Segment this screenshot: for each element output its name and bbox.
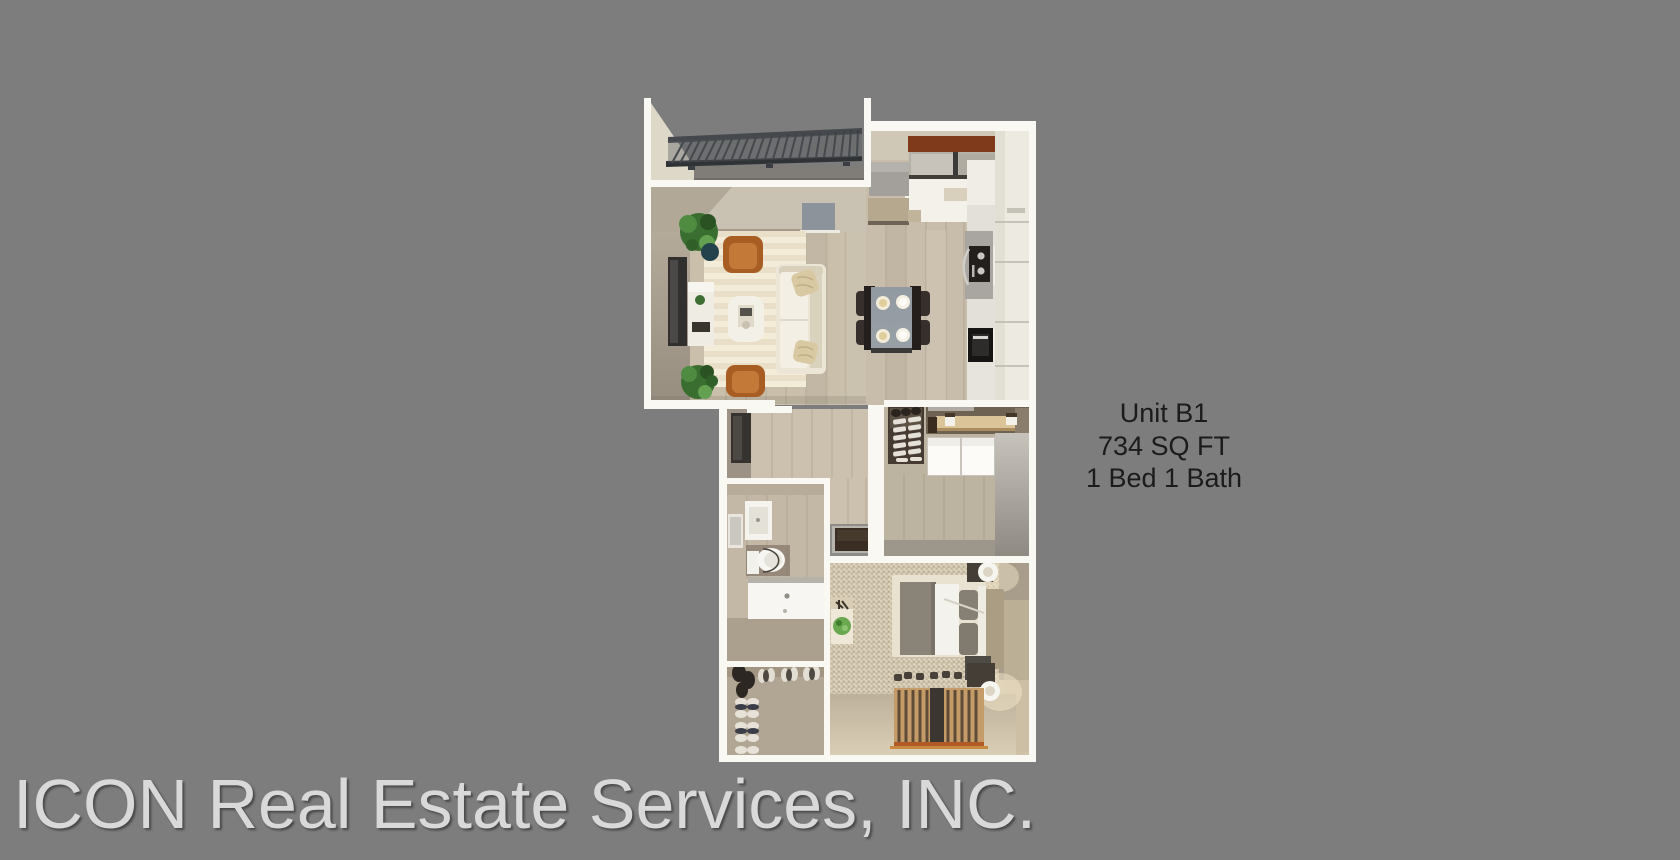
svg-text:1 Bed 1 Bath: 1 Bed 1 Bath — [1086, 463, 1242, 493]
svg-text:Unit B1: Unit B1 — [1120, 398, 1209, 428]
svg-text:734 SQ FT: 734 SQ FT — [1098, 431, 1230, 461]
svg-text:ICON Real Estate Services, INC: ICON Real Estate Services, INC. — [13, 765, 1036, 843]
